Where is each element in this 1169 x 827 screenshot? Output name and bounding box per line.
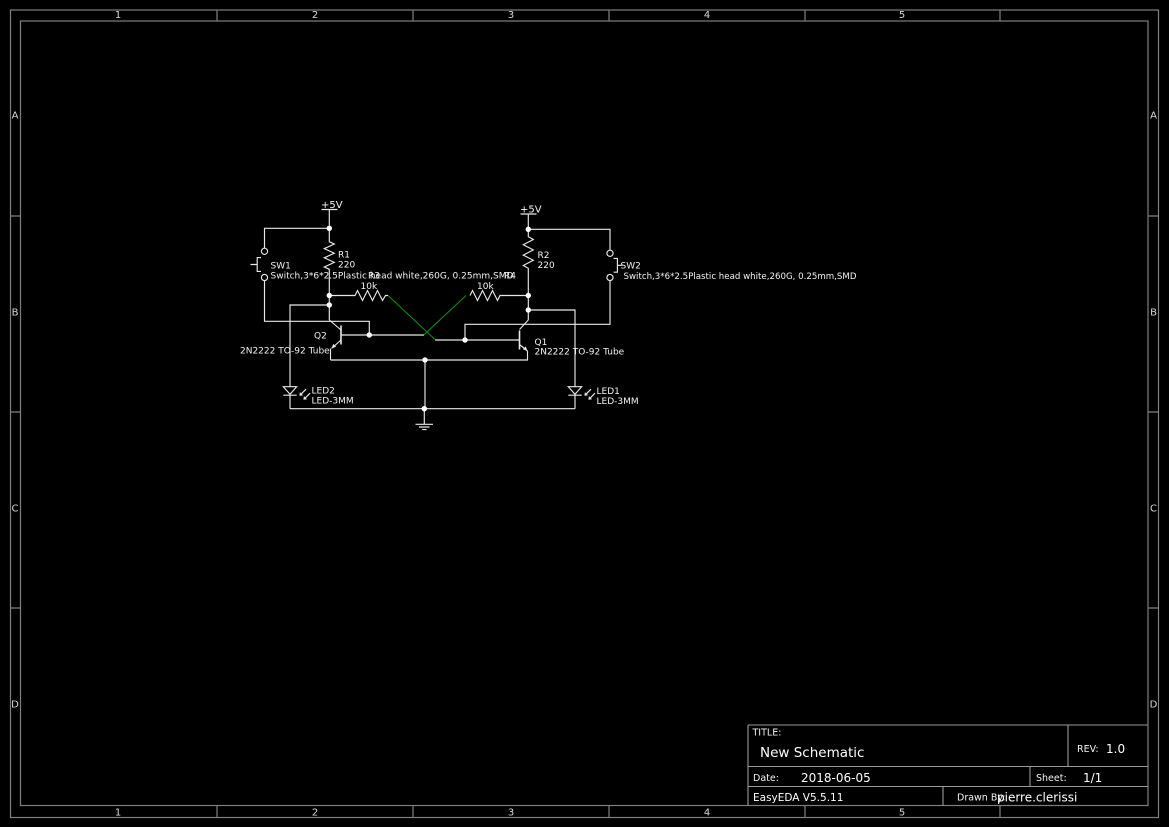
junction-dot	[327, 302, 332, 307]
switch-SW2[interactable]: SW2 Switch,3*6*2.5Plastic head white,260…	[607, 250, 857, 282]
power-flag-right-label: +5V	[520, 205, 542, 216]
sheet-frame: 1 2 3 4 5 1 2 3 4 5 A B C D A B C D	[11, 10, 1159, 819]
junction-dot	[422, 357, 427, 362]
junction-dots	[327, 226, 531, 412]
green-wire-r3-to-q1-base	[388, 296, 435, 340]
zone-col-3-bottom: 3	[508, 808, 514, 819]
label-R4-value: 10k	[477, 282, 494, 292]
resistor-zigzag	[324, 228, 334, 295]
green-wire-r4-to-q2-base	[424, 296, 466, 335]
zone-row-A-left: A	[12, 111, 19, 122]
rev-value: 1.0	[1106, 742, 1125, 756]
zone-row-D-right: D	[1150, 700, 1158, 711]
zone-row-B-right: B	[1150, 308, 1157, 319]
led-triangle	[568, 387, 581, 395]
junction-dot	[526, 307, 531, 312]
switch-terminal	[261, 274, 267, 280]
sheet-label: Sheet:	[1036, 773, 1067, 784]
switch-terminal	[607, 250, 613, 256]
switch-terminal	[607, 274, 613, 280]
zone-col-5-bottom: 5	[899, 808, 905, 819]
cross-coupling-wires	[388, 296, 466, 340]
led-LED1[interactable]: LED1 LED-3MM	[568, 387, 638, 409]
label-R4-name: R4	[504, 272, 516, 282]
power-flag-left-label: +5V	[321, 200, 343, 211]
date-value: 2018-06-05	[801, 771, 871, 785]
label-R1-name: R1	[338, 251, 350, 261]
power-flag-plus5v-right[interactable]: +5V	[520, 205, 542, 230]
title-block: TITLE: New Schematic REV: 1.0 Date: 2018…	[748, 725, 1148, 806]
wire-segments	[265, 228, 611, 408]
label-SW1-desc: Switch,3*6*2.5Plastic head white,260G, 0…	[271, 272, 514, 282]
zone-col-5-top: 5	[899, 10, 905, 21]
label-R3-name: R3	[368, 272, 380, 282]
led-cathode-bar	[568, 395, 581, 409]
label-Q1-desc: 2N2222 TO-92 Tube	[535, 348, 625, 358]
zone-col-3-top: 3	[508, 10, 514, 21]
zone-col-1-top: 1	[115, 10, 121, 21]
label-LED1-name: LED1	[597, 387, 620, 397]
ground-symbol[interactable]	[416, 409, 434, 430]
title-label: TITLE:	[752, 728, 782, 739]
transistor-Q1[interactable]: Q1 2N2222 TO-92 Tube	[520, 320, 625, 360]
junction-dot	[526, 227, 531, 232]
led-cathode-bar	[283, 395, 296, 409]
frame-inner-border	[21, 21, 1149, 806]
led-LED2[interactable]: LED2 LED-3MM	[283, 387, 353, 409]
drawn-by-value: pierre.clerissi	[997, 791, 1077, 805]
label-SW2-desc: Switch,3*6*2.5Plastic head white,260G, 0…	[624, 272, 857, 282]
zone-row-C-right: C	[1150, 504, 1157, 515]
schematic-sheet: 1 2 3 4 5 1 2 3 4 5 A B C D A B C D TITL…	[0, 0, 1169, 827]
sheet-value: 1/1	[1083, 771, 1102, 785]
switch-SW1[interactable]: SW1 Switch,3*6*2.5Plastic head white,260…	[251, 248, 514, 281]
label-Q2-name: Q2	[314, 332, 327, 342]
label-R3-value: 10k	[361, 282, 378, 292]
junction-dot	[327, 293, 332, 298]
junction-dot	[422, 406, 427, 411]
resistor-zigzag	[329, 291, 388, 301]
frame-outer-border	[11, 10, 1159, 818]
zone-row-B-left: B	[12, 308, 19, 319]
label-LED1-value: LED-3MM	[597, 397, 639, 407]
led-triangle	[283, 387, 296, 395]
power-flag-bar-stem	[322, 210, 338, 229]
resistor-R2[interactable]: R2 220	[523, 229, 555, 295]
zone-row-C-left: C	[12, 504, 19, 515]
tool-version: EasyEDA V5.5.11	[753, 792, 843, 804]
label-Q2-desc: 2N2222 TO-92 Tube	[240, 347, 330, 357]
resistor-zigzag	[523, 229, 533, 295]
zone-row-A-right: A	[1150, 111, 1157, 122]
zone-col-4-bottom: 4	[704, 808, 710, 819]
ground-bars	[416, 409, 434, 430]
rev-label: REV:	[1077, 744, 1099, 755]
junction-dot	[327, 226, 332, 231]
label-R1-value: 220	[338, 261, 355, 271]
resistor-zigzag	[470, 291, 528, 301]
junction-dot	[367, 332, 372, 337]
label-SW1-name: SW1	[271, 261, 291, 271]
transistor-leads	[329, 320, 341, 360]
zone-col-1-bottom: 1	[115, 808, 121, 819]
power-flag-plus5v-left[interactable]: +5V	[321, 200, 343, 228]
zone-col-4-top: 4	[704, 10, 710, 21]
label-SW2-name: SW2	[621, 261, 641, 271]
switch-terminal	[261, 248, 267, 254]
switch-actuator	[251, 258, 262, 272]
junction-dot	[526, 293, 531, 298]
label-R2-name: R2	[538, 251, 550, 261]
zone-col-2-top: 2	[312, 10, 318, 21]
title-value: New Schematic	[760, 745, 864, 761]
label-Q1-name: Q1	[535, 338, 548, 348]
transistor-leads	[520, 320, 529, 360]
label-LED2-value: LED-3MM	[312, 396, 354, 406]
resistor-R1[interactable]: R1 220	[324, 228, 355, 295]
label-R2-value: 220	[538, 261, 555, 271]
frame-zone-dividers	[11, 11, 1159, 818]
circuit: +5V +5V R1 220 R2 220 SW1 Switch,3*6*2.5…	[240, 200, 857, 430]
date-label: Date:	[753, 773, 779, 784]
zone-col-2-bottom: 2	[312, 808, 318, 819]
label-LED2-name: LED2	[312, 387, 335, 397]
junction-dot	[462, 337, 467, 342]
zone-row-D-left: D	[11, 700, 19, 711]
